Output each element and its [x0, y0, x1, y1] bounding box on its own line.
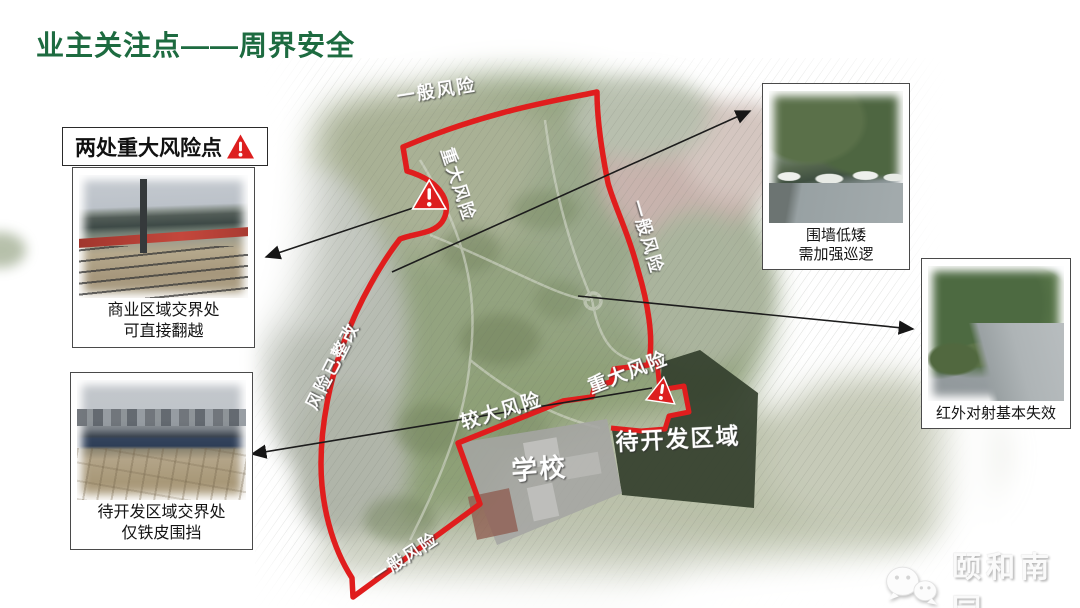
- slide: 一般风险 重大风险 一般风险 风险已整改 较大风险 重大风险 一般风险 学校 待…: [0, 0, 1080, 608]
- photo-caption: 商业区域交界处 可直接翻越: [79, 298, 248, 344]
- photo-card-low-wall: 围墙低矮 需加强巡逻: [762, 83, 910, 270]
- photo-caption: 红外对射基本失效: [928, 401, 1064, 425]
- watermark-text: 颐和南园: [952, 544, 1080, 608]
- photo-infrared-image: [928, 266, 1064, 401]
- photo-card-infrared: 红外对射基本失效: [921, 258, 1071, 429]
- caption-line: 仅铁皮围挡: [77, 524, 246, 544]
- photo-undeveloped-boundary-image: [77, 380, 246, 500]
- photo-detail-fence: [79, 246, 248, 298]
- caption-line: 红外对射基本失效: [928, 404, 1064, 423]
- major-risk-summary-label: 两处重大风险点: [75, 132, 222, 162]
- caption-line: 需加强巡逻: [769, 245, 903, 264]
- photo-caption: 待开发区域交界处 仅铁皮围挡: [77, 500, 246, 546]
- photo-low-wall-image: [769, 91, 903, 223]
- map-label-school: 学校: [510, 452, 568, 486]
- caption-line: 商业区域交界处: [79, 301, 248, 321]
- photo-card-commercial-boundary: 商业区域交界处 可直接翻越: [72, 167, 255, 348]
- caption-line: 围墙低矮: [769, 226, 903, 245]
- photo-card-undeveloped-boundary: 待开发区域交界处 仅铁皮围挡: [70, 372, 253, 550]
- major-risk-summary-box: 两处重大风险点: [62, 127, 268, 166]
- watermark: 颐和南园: [880, 544, 1080, 608]
- photo-detail-pavers: [77, 448, 246, 500]
- photo-detail-skyline: [77, 409, 246, 426]
- photo-caption: 围墙低矮 需加强巡逻: [769, 223, 903, 266]
- caption-line: 可直接翻越: [79, 322, 248, 342]
- page-title: 业主关注点——周界安全: [36, 24, 355, 64]
- caption-line: 待开发区域交界处: [77, 503, 246, 523]
- photo-detail-road: [769, 183, 903, 222]
- photo-commercial-boundary-image: [79, 175, 248, 298]
- wechat-icon: [880, 560, 942, 608]
- warning-triangle-icon: [226, 133, 255, 160]
